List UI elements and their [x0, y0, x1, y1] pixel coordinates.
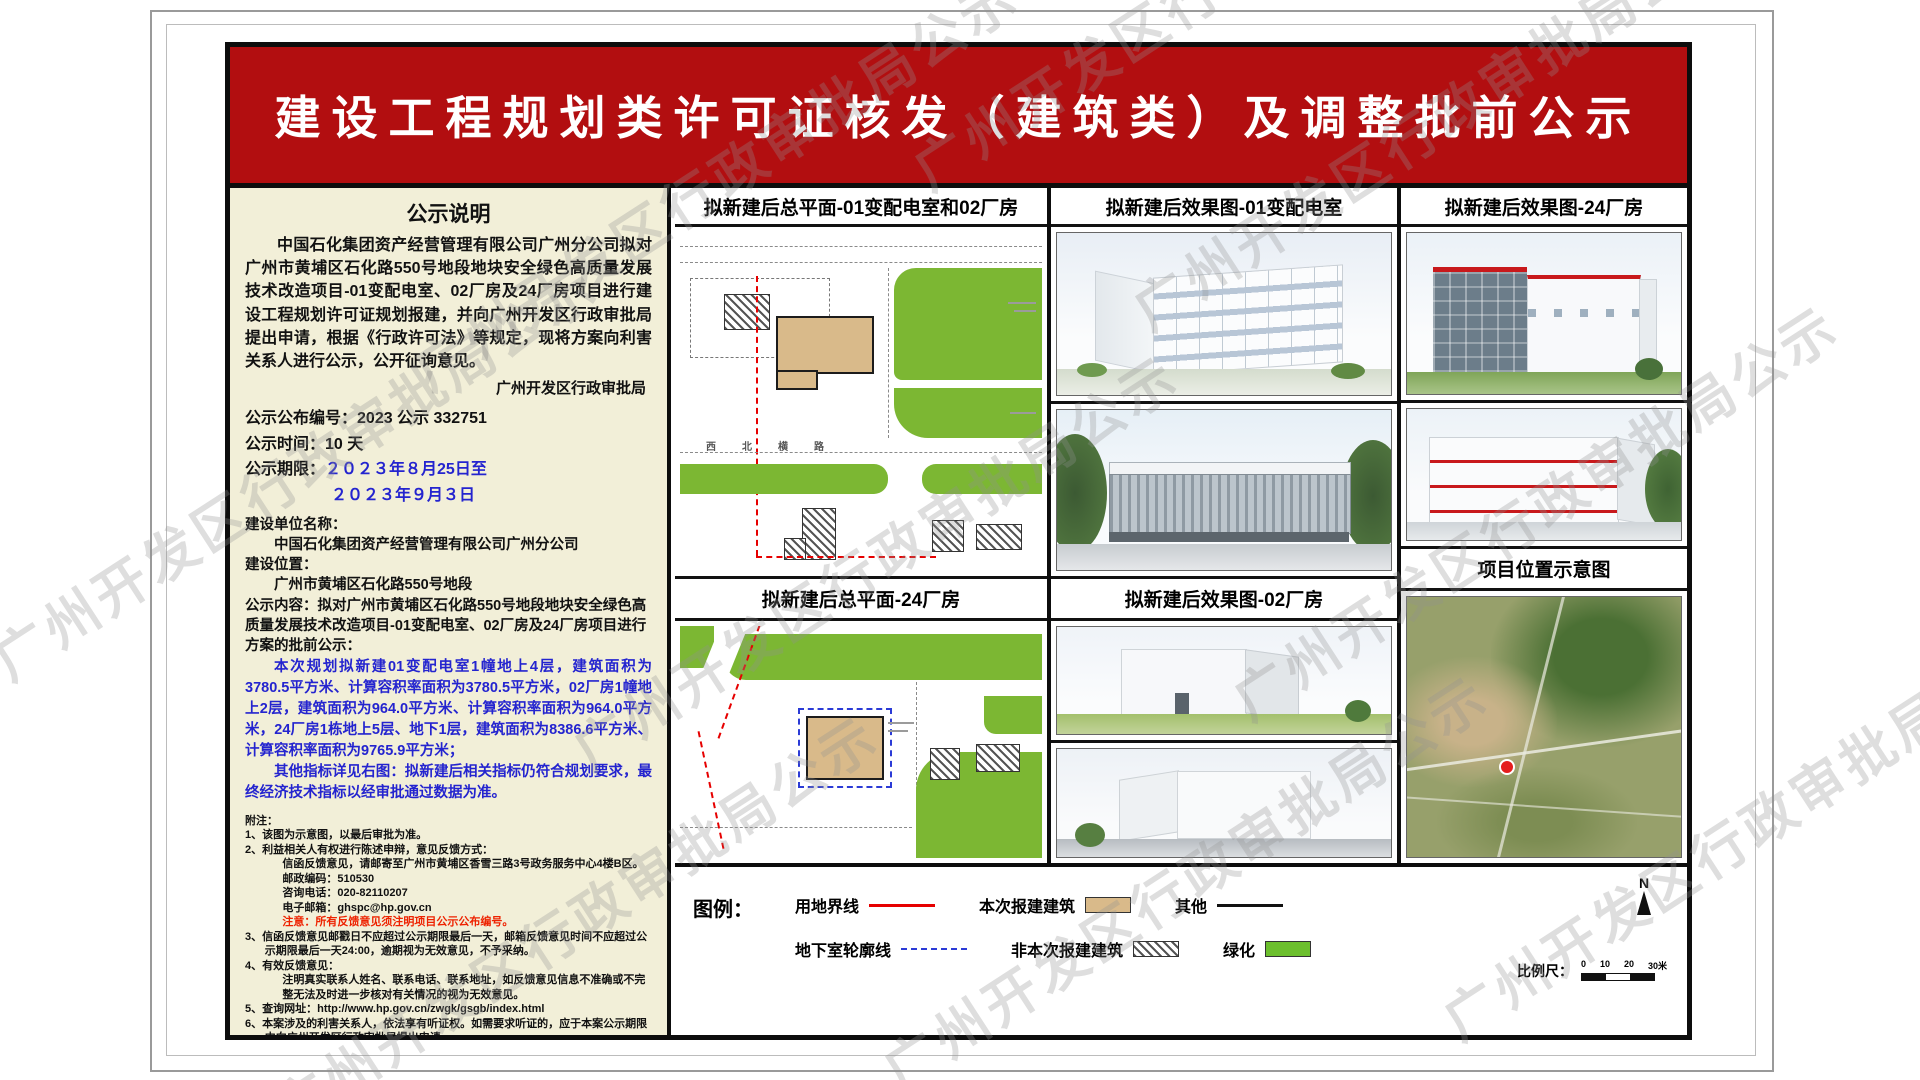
building-front-face [1527, 275, 1641, 374]
note-4a: 注明真实联系人姓名、联系电话、联系地址，如反馈意见信息不准确或不完整无法及时进一… [245, 973, 652, 1002]
legend-item-basement: 地下室轮廓线 [795, 937, 967, 961]
tree [1056, 434, 1107, 552]
publish-no-value: 2023 公示 332751 [357, 410, 487, 427]
duration-line: 公示时间：10 天 [245, 432, 652, 458]
location-label: 建设位置： [245, 555, 652, 575]
map-title: 项目位置示意图 [1477, 555, 1610, 582]
legend-label-basement: 地下室轮廓线 [795, 937, 891, 961]
note-6: 6、本案涉及的利害关系人，依法享有听证权。如需要求听证的，应于本案公示期限内向广… [245, 1017, 652, 1035]
render01-title-bar: 拟新建后效果图-01变配电室 [1051, 188, 1397, 227]
duration-label: 公示时间： [245, 436, 325, 453]
note-2d: 电子邮箱：ghspc@hp.gov.cn [245, 901, 652, 916]
legend-row-1: 用地界线 本次报建建筑 其他 [795, 893, 1283, 917]
note-2: 2、利益相关人有权进行陈述申辩，意见反馈方式： [245, 843, 652, 858]
note-5-query-url: 5、查询网址：http://www.hp.gov.cn/zwgk/gsgb/in… [245, 1002, 652, 1017]
green-swatch [1265, 941, 1311, 957]
site-plan-column: 拟新建后总平面-01变配电室和02厂房 西北横路 [675, 188, 1051, 863]
green-area [984, 696, 1042, 734]
bush [1331, 363, 1365, 379]
location-value: 广州市黄埔区石化路550号地段 [245, 575, 652, 595]
building-facade [1109, 474, 1351, 534]
render-02-view-1-image [1056, 626, 1392, 735]
legend-item-other: 其他 [1175, 893, 1283, 917]
notice-body: 中国石化集团资产经营管理有限公司广州分公司拟对广州市黄埔区石化路550号地段地块… [245, 234, 652, 373]
legend-label-new-building: 本次报建建筑 [979, 893, 1075, 917]
grass [1057, 714, 1391, 734]
boundary-line-symbol [869, 904, 935, 907]
legend-caption: 图例： [693, 893, 753, 922]
tree [1075, 823, 1105, 847]
new-building-24 [806, 716, 884, 780]
render-02-view-2 [1051, 743, 1397, 863]
legend-label-green: 绿化 [1223, 937, 1255, 961]
render24-title-bar: 拟新建后效果图-24厂房 [1401, 188, 1687, 227]
duration-value: 10 天 [325, 436, 363, 453]
site-plan-01-02: 西北横路 [675, 227, 1047, 579]
legend-label-not-this: 非本次报建建筑 [1011, 937, 1123, 961]
road-line [680, 262, 1042, 263]
plan-annotation [1010, 412, 1036, 414]
render01-title: 拟新建后效果图-01变配电室 [1106, 193, 1342, 220]
render-column-01-02: 拟新建后效果图-01变配电室 拟新建后效果图-02厂房 [1051, 188, 1401, 863]
render-24-view-2 [1401, 403, 1687, 549]
building-front-face [1153, 264, 1343, 375]
existing-building-hatch [802, 508, 836, 560]
plan2-title-bar: 拟新建后总平面-24厂房 [675, 579, 1047, 621]
tree [1345, 700, 1371, 722]
plan-annotation [1014, 310, 1036, 312]
notes-heading: 附注： [245, 814, 652, 829]
period-to: ２０２３年９月３日 [331, 487, 475, 504]
period-line-1: 公示期限：２０２３年８月25日至 [245, 457, 652, 483]
scale-tick: 30米 [1648, 959, 1667, 972]
building-side-face [1119, 770, 1179, 842]
satellite-map-image [1406, 596, 1682, 858]
period-from: ２０２３年８月25日至 [325, 461, 487, 478]
legend-item-not-this: 非本次报建建筑 [1011, 937, 1179, 961]
render-01-view-2 [1051, 404, 1397, 579]
legend-label-boundary: 用地界线 [795, 893, 859, 917]
plan1-title: 拟新建后总平面-01变配电室和02厂房 [704, 193, 1019, 220]
notice-heading: 公示说明 [245, 198, 652, 228]
scale-tick: 20 [1624, 959, 1634, 972]
site-boundary-red [756, 556, 936, 558]
notice-panel: 公示说明 中国石化集团资产经营管理有限公司广州分公司拟对广州市黄埔区石化路550… [230, 188, 671, 1035]
notice-signature: 广州开发区行政审批局 [245, 377, 646, 398]
render-01-view-2-image [1056, 409, 1392, 571]
plan-annotation [888, 730, 908, 732]
north-arrow-icon [1637, 891, 1651, 915]
existing-building-hatch [724, 294, 770, 330]
ground [1407, 522, 1681, 540]
glass-facade [1433, 267, 1527, 374]
plan1-title-bar: 拟新建后总平面-01变配电室和02厂房 [675, 188, 1047, 227]
note-3: 3、信函反馈意见邮戳日不应超过公示期限最后一天，邮箱反馈意见时间不应超过公示期限… [245, 930, 652, 959]
plan-annotation [1008, 302, 1036, 304]
plan-annotation [888, 722, 914, 724]
notice-board: 建设工程规划类许可证核发（建筑类）及调整批前公示 公示说明 中国石化集团资产经营… [225, 42, 1692, 1040]
north-arrow: N [1637, 875, 1651, 915]
render-24-view-2-image [1406, 408, 1682, 541]
site-marker [1499, 759, 1515, 775]
scale-bar: 比例尺： 0 10 20 30米 [1517, 959, 1667, 981]
note-1: 1、该图为示意图，以最后审批为准。 [245, 828, 652, 843]
publish-no-line: 公示公布编号：2023 公示 332751 [245, 406, 652, 432]
road-line [888, 268, 889, 438]
scale-ruler: 0 10 20 30米 [1581, 959, 1667, 981]
render-01-view-1-image [1056, 232, 1392, 396]
render-02-view-2-image [1056, 748, 1392, 858]
legend-item-green: 绿化 [1223, 937, 1311, 961]
site-boundary-red [698, 731, 725, 849]
building-front-red-stripes [1429, 437, 1619, 523]
plan-detail-2: 其他指标详见右图：拟新建后相关指标仍符合规划要求，最终经济技术指标以经审批通过数… [245, 762, 652, 804]
plan2-title: 拟新建后总平面-24厂房 [762, 585, 960, 612]
render02-title-bar: 拟新建后效果图-02厂房 [1051, 579, 1397, 621]
note-2-warning: 注意：所有反馈意见须注明项目公示公布编号。 [245, 915, 652, 930]
map-title-bar: 项目位置示意图 [1401, 549, 1687, 591]
green-band [922, 464, 1042, 494]
content-label: 公示内容： [245, 598, 318, 614]
building-front-face [1177, 771, 1311, 839]
render-02-view-1 [1051, 621, 1397, 743]
new-building-02 [776, 370, 818, 390]
new-building-01 [776, 316, 874, 374]
door [1175, 693, 1189, 715]
tree [1635, 358, 1663, 380]
render-column-24-map: 拟新建后效果图-24厂房 项目位置示意图 [1401, 188, 1687, 863]
ground [1057, 839, 1391, 857]
render-24-view-1-image [1406, 232, 1682, 395]
building-side-face [1245, 649, 1299, 721]
basement-line-symbol [901, 948, 967, 950]
render02-title: 拟新建后效果图-02厂房 [1125, 585, 1323, 612]
legend-label-other: 其他 [1175, 893, 1207, 917]
north-label: N [1639, 875, 1649, 891]
site-plan-01-02-drawing: 西北横路 [680, 232, 1042, 571]
green-band [680, 464, 888, 494]
period-line-2: ２０２３年９月３日 [245, 483, 652, 509]
location-map [1401, 591, 1687, 863]
note-2c: 咨询电话：020-82110207 [245, 886, 652, 901]
road-label: 西北横路 [706, 438, 850, 453]
green-band [724, 634, 1042, 680]
page-title: 建设工程规划类许可证核发（建筑类）及调整批前公示 [275, 82, 1643, 148]
existing-building-hatch [932, 520, 964, 552]
site-boundary-red [756, 276, 758, 556]
scale-ticks: 0 10 20 30米 [1581, 959, 1667, 972]
scale-tick: 10 [1600, 959, 1610, 972]
ground [1057, 544, 1391, 570]
not-this-swatch [1133, 941, 1179, 957]
site-plan-24 [675, 621, 1047, 863]
scale-tick: 0 [1581, 959, 1586, 972]
legend-item-new-building: 本次报建建筑 [979, 893, 1131, 917]
plan-detail-1: 本次规划拟新建01变配电室1幢地上4层，建筑面积为3780.5平方米、计算容积率… [245, 657, 652, 762]
builder-label: 建设单位名称： [245, 515, 652, 535]
existing-building-hatch [976, 744, 1020, 772]
notes-block: 附注： 1、该图为示意图，以最后审批为准。 2、利益相关人有权进行陈述申辩，意见… [245, 814, 652, 1035]
banner: 建设工程规划类许可证核发（建筑类）及调整批前公示 [230, 47, 1687, 188]
note-4: 4、有效反馈意见： [245, 959, 652, 974]
other-line-symbol [1217, 904, 1283, 907]
content-line: 公示内容：拟对广州市黄埔区石化路550号地段地块安全绿色高质量发展技术改造项目-… [245, 596, 652, 657]
green-area [894, 268, 1042, 380]
road-line [680, 827, 912, 828]
note-2a: 信函反馈意见，请邮寄至广州市黄埔区香雪三路3号政务服务中心4楼B区。 [245, 857, 652, 872]
site-plan-24-drawing [680, 626, 1042, 858]
legend-item-boundary: 用地界线 [795, 893, 935, 917]
legend: 图例： 用地界线 本次报建建筑 其他 地下室轮廓线 非本次报建建筑 绿化 N 比… [675, 863, 1687, 1035]
existing-building-hatch [976, 524, 1022, 550]
publish-no-label: 公示公布编号： [245, 410, 357, 427]
road-line [680, 246, 1042, 247]
render24-title: 拟新建后效果图-24厂房 [1445, 193, 1643, 220]
loading-dock [1109, 532, 1349, 542]
render-24-view-1 [1401, 227, 1687, 403]
note-2b: 邮政编码：510530 [245, 872, 652, 887]
scale-bar-segments [1581, 973, 1655, 981]
period-label: 公示期限： [245, 461, 325, 478]
render-01-view-1 [1051, 227, 1397, 404]
building-side-face [1095, 271, 1155, 374]
existing-building-hatch [930, 748, 960, 780]
builder-value: 中国石化集团资产经营管理有限公司广州分公司 [245, 535, 652, 555]
scale-label: 比例尺： [1517, 961, 1573, 981]
legend-row-2: 地下室轮廓线 非本次报建建筑 绿化 [795, 937, 1311, 961]
new-building-swatch [1085, 897, 1131, 913]
bush [1077, 363, 1107, 377]
